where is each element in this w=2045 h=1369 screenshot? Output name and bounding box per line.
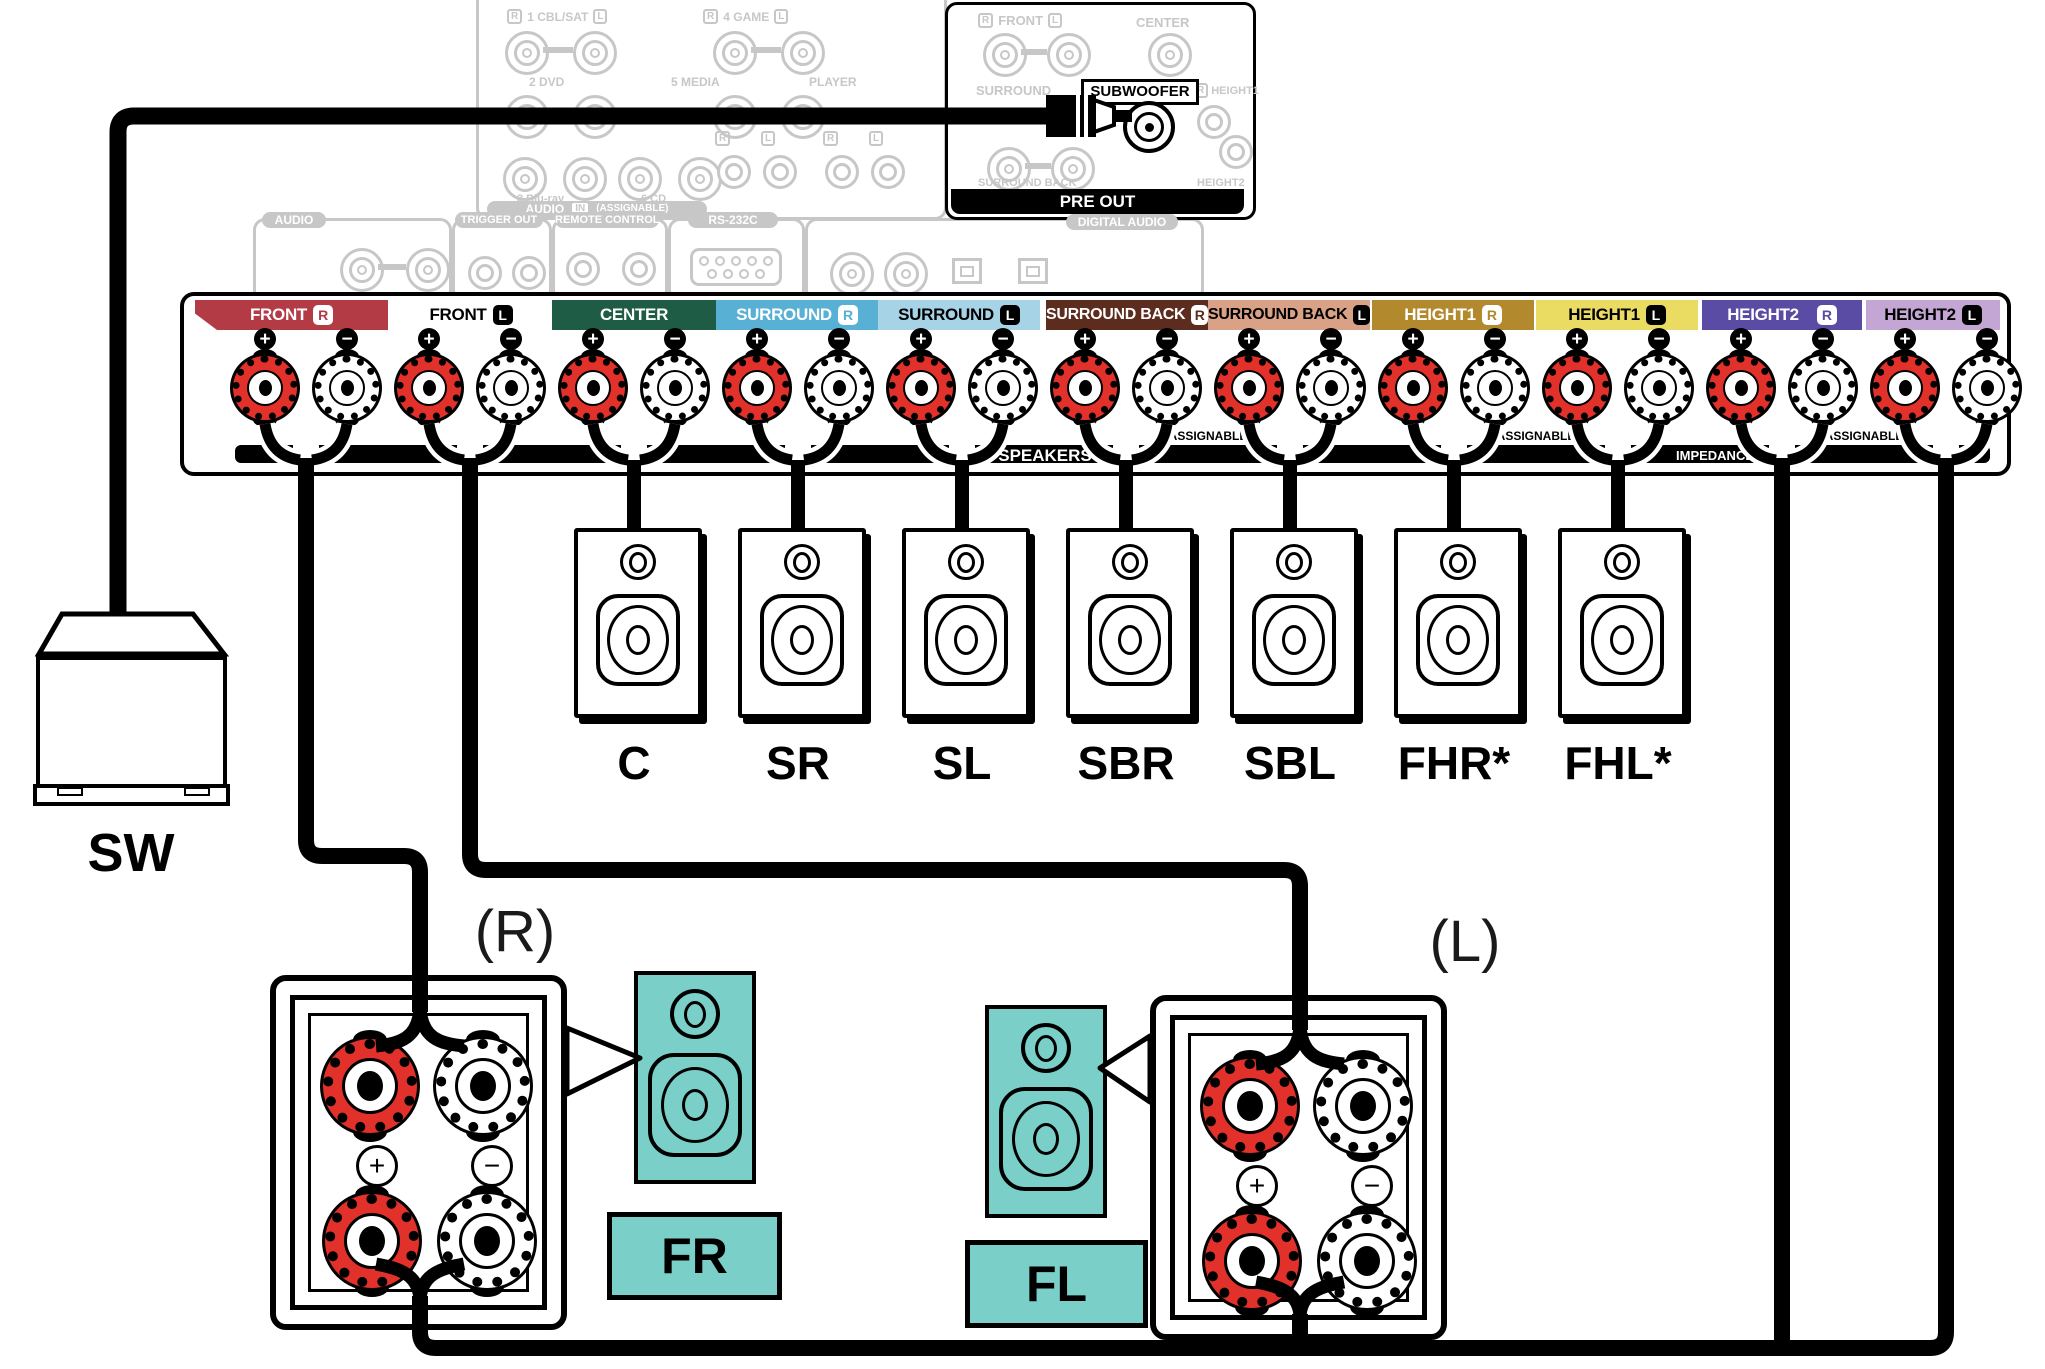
right-channel-box: R (823, 131, 838, 146)
binding-post-red (889, 356, 953, 420)
rca-jack-icon (1148, 33, 1192, 77)
remote-out-jack-icon (622, 252, 656, 286)
front-l-label-box: FL (965, 1240, 1148, 1328)
front-l-speaker-icon (985, 1005, 1107, 1218)
remote-in-jack-icon (566, 252, 600, 286)
plus-icon: + (582, 328, 604, 350)
terminal-front-r-minus: − (315, 328, 379, 420)
channel-letter-box: R (838, 305, 858, 325)
pre-out-bar-label: PRE OUT (1060, 192, 1136, 211)
woofer-icon (924, 594, 1008, 686)
terminal-center-minus: − (643, 328, 707, 420)
front-l-high-minus-post (1316, 1059, 1410, 1153)
channel-letter-box: L (1962, 305, 1982, 325)
terminal-height2-l-plus: + (1873, 328, 1937, 420)
left-channel-box: L (869, 131, 883, 146)
input-label: 2 DVD (529, 75, 564, 89)
terminal-surround-r-plus: + (725, 328, 789, 420)
rca-jack-icon (505, 31, 549, 75)
subwoofer-label: SUBWOOFER (1090, 83, 1189, 100)
position-label-r: (R) (455, 898, 575, 965)
digital-audio-pill: DIGITAL AUDIO (1066, 214, 1178, 230)
plus-icon: + (254, 328, 276, 350)
woofer-icon (1416, 594, 1500, 686)
terminal-band-center: CENTER (552, 300, 716, 330)
binding-post-white (1299, 356, 1363, 420)
binding-post-red (325, 1194, 419, 1288)
bar-gap (293, 443, 319, 465)
bar-gap (1113, 443, 1139, 465)
plus-icon: + (1566, 328, 1588, 350)
bar-gap (1769, 443, 1795, 465)
bar-gap (785, 443, 811, 465)
terminal-height2-l-minus: − (1955, 328, 2019, 420)
plus-icon: + (1074, 328, 1096, 350)
binding-post-red (1217, 356, 1281, 420)
speaker-label-fhr: FHR* (1374, 736, 1534, 790)
speaker-surround-back-r (1066, 528, 1194, 718)
binding-post-red (1709, 356, 1773, 420)
minus-icon: − (1320, 328, 1342, 350)
woofer-icon (760, 594, 844, 686)
rca-jack-icon (1047, 33, 1091, 77)
woofer-icon (1252, 594, 1336, 686)
input-label-row: R 1 CBL/SAT L (507, 9, 607, 24)
right-channel-box: R (703, 9, 718, 24)
speaker-label-sbr: SBR (1046, 736, 1206, 790)
band-label: SURROUND (898, 305, 994, 325)
subwoofer-jack-icon (1123, 101, 1175, 153)
plus-icon: + (910, 328, 932, 350)
height2-label: HEIGHT2 (1197, 177, 1245, 189)
binding-post-white (479, 356, 543, 420)
minus-icon: − (1648, 328, 1670, 350)
minus-icon: − (1156, 328, 1178, 350)
assignable-label: ASSIGNABLE (1492, 429, 1580, 443)
terminal-height2-r-minus: − (1791, 328, 1855, 420)
rca-jack-icon (983, 33, 1027, 77)
binding-post-white (1791, 356, 1855, 420)
right-channel-box: R (507, 9, 522, 24)
band-label: HEIGHT2 (1727, 305, 1799, 325)
terminal-center-plus: + (561, 328, 625, 420)
minus-icon: − (336, 328, 358, 350)
woofer-icon (1580, 594, 1664, 686)
terminal-height1-r-minus: − (1463, 328, 1527, 420)
binding-post-red (233, 356, 297, 420)
terminal-front-l-plus: + (397, 328, 461, 420)
binding-post-white (1316, 1059, 1410, 1153)
input-label: PLAYER (809, 75, 857, 89)
binding-post-white (1463, 356, 1527, 420)
tweeter-icon (1112, 544, 1148, 580)
tweeter-icon (1276, 544, 1312, 580)
minus-icon: − (664, 328, 686, 350)
plus-icon: + (1730, 328, 1752, 350)
jack-pair-bar (543, 47, 573, 53)
binding-post-red (1203, 1059, 1297, 1153)
binding-post-red (1545, 356, 1609, 420)
speaker-label-fhl: FHL* (1538, 736, 1698, 790)
binding-post-white (643, 356, 707, 420)
jack-pair-bar (751, 47, 781, 53)
binding-post-red (1381, 356, 1445, 420)
binding-post-white (1955, 356, 2019, 420)
subwoofer-label: SW (61, 822, 201, 884)
pre-out-front-label: R FRONT L (978, 13, 1062, 28)
front-r-low-plus-post (325, 1194, 419, 1288)
trigger-jack-icon (468, 256, 502, 290)
minus-icon: − (828, 328, 850, 350)
band-label: FRONT (250, 305, 307, 325)
front-r-high-plus-post (323, 1039, 417, 1133)
plus-icon: + (1402, 328, 1424, 350)
terminal-band-surround-l: SURROUNDL (878, 300, 1040, 330)
terminal-surround-back-l-minus: − (1299, 328, 1363, 420)
input-label: 1 CBL/SAT (527, 10, 588, 24)
subwoofer-top (39, 614, 224, 654)
terminal-band-front-r: FRONTR (195, 300, 388, 330)
band-label: SURROUND BACK (1208, 306, 1347, 324)
minus-symbol: − (471, 1145, 513, 1187)
front-l-low-minus-post (1320, 1214, 1414, 1308)
input-label-row: R 4 GAME L (703, 9, 788, 24)
binding-post-white (971, 356, 1035, 420)
bar-gap (1277, 443, 1303, 465)
binding-post-red (1205, 1214, 1299, 1308)
height1-label-row: R HEIGHT1 (1193, 83, 1259, 98)
coaxial-jack-icon (830, 252, 874, 296)
rs232c-connector-icon (690, 248, 782, 286)
terminal-height1-l-plus: + (1545, 328, 1609, 420)
terminal-band-height2-l: HEIGHT2L (1866, 300, 2000, 330)
bar-gap (1933, 443, 1959, 465)
speaker-front-height-r (1394, 528, 1522, 718)
jack-pair-bar (1021, 49, 1047, 55)
minus-icon: − (1976, 328, 1998, 350)
bar-gap (1605, 443, 1631, 465)
woofer-icon (596, 594, 680, 686)
speaker-label-c: C (554, 736, 714, 790)
left-channel-box: L (1048, 13, 1062, 28)
tweeter-icon (1440, 544, 1476, 580)
minus-icon: − (992, 328, 1014, 350)
terminal-surround-l-plus: + (889, 328, 953, 420)
terminal-band-front-l: FRONTL (390, 300, 552, 330)
input-label: 4 GAME (723, 10, 769, 24)
surround-back-label: SURROUND BACK (978, 177, 1076, 189)
binding-post-red (323, 1039, 417, 1133)
rca-jack-icon (573, 95, 617, 139)
binding-post-white (436, 1039, 530, 1133)
front-r-speaker-icon (634, 971, 756, 1184)
band-label: HEIGHT1 (1568, 305, 1640, 325)
plus-icon: + (746, 328, 768, 350)
tweeter-icon (1021, 1023, 1071, 1073)
front-r-label: FR (661, 1227, 728, 1285)
band-label: SURROUND (736, 305, 832, 325)
rca-plug-icon (1046, 95, 1096, 137)
rca-jack-icon (781, 31, 825, 75)
woofer-icon (648, 1053, 742, 1157)
speaker-center (574, 528, 702, 718)
audio-pill: AUDIO (262, 212, 326, 228)
front-label: FRONT (998, 13, 1043, 28)
terminal-front-l-minus: − (479, 328, 543, 420)
binding-post-white (1135, 356, 1199, 420)
plus-symbol: + (356, 1145, 398, 1187)
binding-post-red (1053, 356, 1117, 420)
terminal-height1-r-plus: + (1381, 328, 1445, 420)
binding-post-white (440, 1194, 534, 1288)
minus-icon: − (1812, 328, 1834, 350)
channel-letter-box: L (1353, 305, 1370, 325)
surround-label: SURROUND (976, 83, 1051, 98)
woofer-icon (1088, 594, 1172, 686)
band-label: HEIGHT2 (1884, 305, 1956, 325)
channel-letter-box: R (313, 305, 333, 325)
terminal-band-height1-r: HEIGHT1R (1372, 300, 1534, 330)
left-channel-box: L (593, 9, 607, 24)
binding-post-white (807, 356, 871, 420)
rca-jack-icon (763, 155, 797, 189)
pre-out-panel: R FRONT L CENTER SURROUND SUBWOOFER 1 R … (945, 2, 1256, 220)
channel-letter-box: L (493, 305, 513, 325)
band-label: HEIGHT1 (1404, 305, 1476, 325)
optical-port-icon (952, 258, 982, 284)
height1-label: HEIGHT1 (1211, 85, 1259, 97)
plus-icon: + (418, 328, 440, 350)
band-label: SURROUND BACK (1046, 306, 1185, 324)
tweeter-icon (948, 544, 984, 580)
front-l-high-plus-post (1203, 1059, 1297, 1153)
bar-gap (949, 443, 975, 465)
remote-control-pill: REMOTE CONTROL (555, 212, 659, 228)
left-channel-box: L (761, 131, 775, 146)
jack-pair-bar (1025, 163, 1051, 169)
front-l-label: FL (1026, 1255, 1087, 1313)
front-r-high-minus-post (436, 1039, 530, 1133)
bar-gap (1441, 443, 1467, 465)
speaker-front-height-l (1558, 528, 1686, 718)
binding-post-white (315, 356, 379, 420)
assignable-label: ASSIGNABLE (1820, 429, 1908, 443)
tweeter-icon (670, 989, 720, 1039)
rca-jack-icon (1197, 105, 1231, 139)
front-l-low-plus-post (1205, 1214, 1299, 1308)
speaker-label-sr: SR (718, 736, 878, 790)
speaker-surround-back-l (1230, 528, 1358, 718)
speaker-label-sbl: SBL (1210, 736, 1370, 790)
plus-icon: + (1238, 328, 1260, 350)
rca-jack-icon (781, 95, 825, 139)
bar-gap (457, 443, 483, 465)
terminal-band-surround-back-l: SURROUND BACKL (1208, 300, 1370, 330)
rca-jack-icon (717, 155, 751, 189)
channel-letter-box: L (1646, 305, 1666, 325)
rca-jack-icon (1219, 135, 1253, 169)
minus-symbol: − (1351, 1165, 1393, 1207)
rs232c-pill: RS-232C (688, 212, 778, 228)
faded-audio-in-panel: R 1 CBL/SAT L R 4 GAME L 2 DVD 5 MEDIA P… (476, 0, 947, 220)
minus-icon: − (500, 328, 522, 350)
band-label: FRONT (429, 305, 486, 325)
assignable-label: ASSIGNABLE (1164, 429, 1252, 443)
speaker-surround-r (738, 528, 866, 718)
subwoofer-foot (184, 787, 210, 796)
rca-jack-icon (340, 248, 384, 292)
channel-letter-box: R (1817, 305, 1837, 325)
pre-out-bar: PRE OUT (951, 189, 1244, 214)
tweeter-icon (1604, 544, 1640, 580)
terminal-surround-back-l-plus: + (1217, 328, 1281, 420)
front-r-terminal-panel: + − (270, 975, 567, 1330)
rca-jack-icon (573, 31, 617, 75)
binding-post-red (1873, 356, 1937, 420)
front-r-cable (306, 458, 420, 1012)
rca-jack-icon (825, 155, 859, 189)
trigger-out-pill: TRIGGER OUT (455, 212, 543, 228)
rca-jack-icon (871, 155, 905, 189)
callout-wedge-l (1100, 1036, 1150, 1102)
right-channel-box: R (978, 13, 993, 28)
callout-wedge-r (567, 1028, 640, 1094)
terminal-band-surround-back-r: SURROUND BACKR (1046, 300, 1208, 330)
optical-port-icon (1018, 258, 1048, 284)
channel-letter-box: R (1191, 305, 1208, 325)
binding-post-red (561, 356, 625, 420)
woofer-icon (999, 1087, 1093, 1191)
terminal-band-height2-r: HEIGHT2R (1702, 300, 1862, 330)
coaxial-jack-icon (884, 252, 928, 296)
rca-jack-icon (563, 157, 607, 201)
rca-jack-icon (406, 248, 450, 292)
subwoofer-foot (57, 787, 83, 796)
terminal-band-surround-r: SURROUNDR (716, 300, 878, 330)
terminal-height1-l-minus: − (1627, 328, 1691, 420)
speaker-label-sl: SL (882, 736, 1042, 790)
subwoofer-label-box: SUBWOOFER (1081, 79, 1199, 105)
terminal-height2-r-plus: + (1709, 328, 1773, 420)
binding-post-red (725, 356, 789, 420)
front-r-label-box: FR (607, 1212, 782, 1300)
right-channel-box: R (715, 131, 730, 146)
plus-symbol: + (1236, 1165, 1278, 1207)
terminal-surround-back-r-minus: − (1135, 328, 1199, 420)
band-label: CENTER (600, 305, 668, 325)
center-label: CENTER (1136, 15, 1189, 30)
tweeter-icon (620, 544, 656, 580)
jack-pair-bar (378, 264, 406, 270)
binding-post-white (1320, 1214, 1414, 1308)
input-label: 5 MEDIA (671, 75, 720, 89)
terminal-surround-r-minus: − (807, 328, 871, 420)
terminal-surround-back-r-plus: + (1053, 328, 1117, 420)
terminal-front-r-plus: + (233, 328, 297, 420)
rca-jack-icon (713, 31, 757, 75)
rca-jack-icon (505, 95, 549, 139)
tweeter-icon (784, 544, 820, 580)
front-r-low-minus-post (440, 1194, 534, 1288)
speaker-connection-diagram: R 1 CBL/SAT L R 4 GAME L 2 DVD 5 MEDIA P… (0, 0, 2045, 1369)
position-label-l: (L) (1400, 908, 1530, 975)
bar-gap (621, 443, 647, 465)
terminal-band-height1-l: HEIGHT1L (1536, 300, 1698, 330)
front-l-terminal-panel: + − (1150, 995, 1447, 1340)
trigger-jack-icon (512, 256, 546, 290)
left-channel-box: L (774, 9, 788, 24)
binding-post-white (1627, 356, 1691, 420)
rca-jack-icon (678, 157, 722, 201)
plus-icon: + (1894, 328, 1916, 350)
speakers-bar-label: SPEAKERS (985, 446, 1105, 466)
binding-post-red (397, 356, 461, 420)
speaker-surround-l (902, 528, 1030, 718)
minus-icon: − (1484, 328, 1506, 350)
channel-letter-box: L (1000, 305, 1020, 325)
subwoofer-box (36, 656, 227, 788)
channel-letter-box: R (1482, 305, 1502, 325)
terminal-surround-l-minus: − (971, 328, 1035, 420)
